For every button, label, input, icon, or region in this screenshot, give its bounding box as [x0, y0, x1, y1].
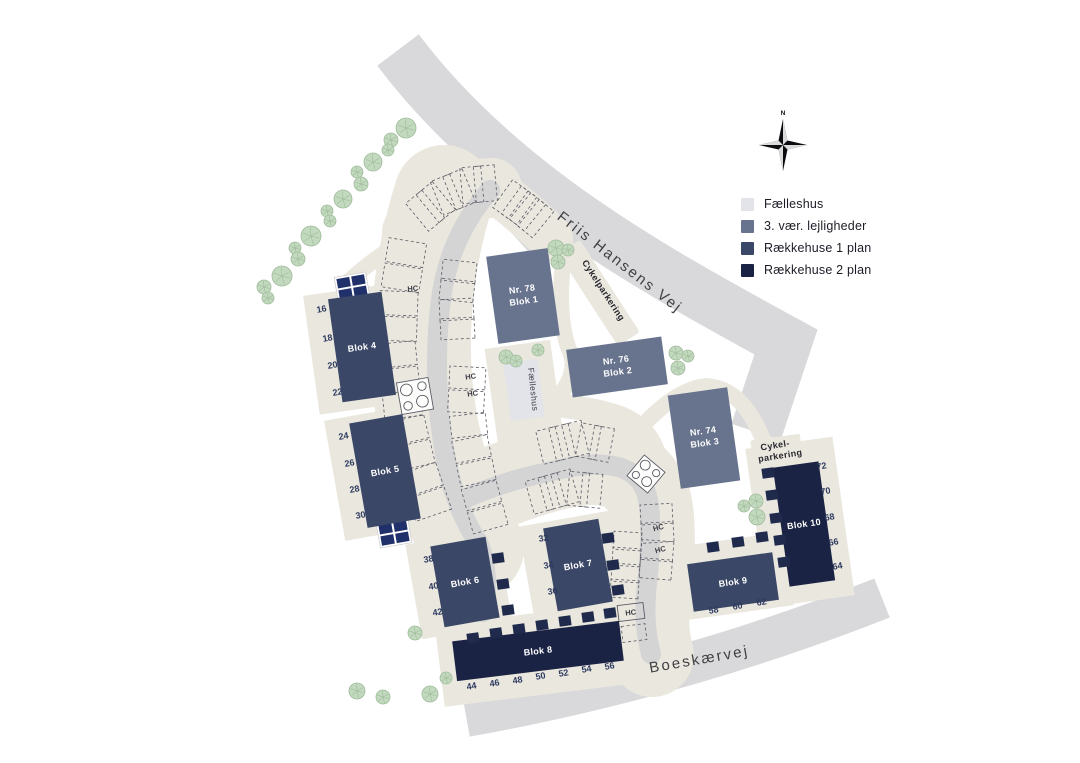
tree-icon — [334, 190, 352, 208]
house-number: 34 — [543, 559, 555, 571]
house-number: 30 — [355, 509, 367, 521]
tree-icon — [301, 226, 321, 246]
house-number: 62 — [756, 596, 768, 608]
shed — [755, 531, 768, 543]
legend-item-rowhouse-1: Rækkehuse 1 plan — [741, 241, 871, 255]
legend-swatch — [741, 220, 754, 233]
site-plan-map: Nr. 78Blok 1Nr. 76Blok 2Nr. 74Blok 3Blok… — [0, 0, 1080, 763]
house-number: 52 — [558, 667, 570, 679]
house-number: 36 — [547, 585, 559, 597]
shed — [466, 632, 479, 644]
hc-parking-label: HC — [407, 284, 419, 294]
house-number: 40 — [428, 580, 440, 592]
tree-icon — [272, 266, 292, 286]
building-blok-1: Nr. 78Blok 1 — [486, 248, 560, 344]
tree-icon — [738, 500, 750, 512]
legend-label: 3. vær. lejligheder — [764, 219, 866, 233]
house-number: 24 — [338, 430, 350, 442]
tree-icon — [351, 166, 363, 178]
tree-icon — [551, 255, 565, 269]
house-number: 56 — [604, 660, 616, 672]
house-number: 46 — [489, 677, 501, 689]
tree-icon — [349, 683, 365, 699]
tree-icon — [291, 252, 305, 266]
house-number: 42 — [432, 606, 444, 618]
legend: Fælleshus3. vær. lejlighederRækkehuse 1 … — [741, 197, 871, 277]
tree-icon — [324, 215, 336, 227]
shed — [512, 623, 525, 635]
tree-icon — [354, 177, 368, 191]
compass-north-label: N — [781, 110, 786, 117]
shed — [489, 627, 502, 639]
tree-icon — [396, 118, 416, 138]
house-number: 48 — [512, 674, 524, 686]
tree-icon — [548, 240, 564, 256]
shed — [496, 578, 509, 590]
site-plan-page: Nr. 78Blok 1Nr. 76Blok 2Nr. 74Blok 3Blok… — [0, 0, 1080, 763]
house-number: 72 — [816, 460, 828, 472]
shed — [535, 619, 548, 631]
shed — [773, 534, 786, 546]
house-number: 32 — [538, 532, 550, 544]
hc-parking-label: HC — [465, 371, 478, 382]
shed — [603, 607, 616, 619]
legend-label: Rækkehuse 1 plan — [764, 241, 871, 255]
legend-swatch — [741, 242, 754, 255]
legend-swatch — [741, 198, 754, 211]
tree-icon — [532, 344, 544, 356]
shed — [765, 489, 778, 501]
tree-icon — [364, 153, 382, 171]
house-number: 58 — [708, 604, 720, 616]
house-number: 60 — [732, 600, 744, 612]
tree-icon — [422, 686, 438, 702]
tree-icon — [382, 144, 394, 156]
house-number: 64 — [832, 560, 844, 572]
shed — [501, 604, 514, 616]
shed — [558, 615, 571, 627]
house-number: 50 — [535, 670, 547, 682]
tree-icon — [749, 509, 765, 525]
house-number: 38 — [423, 553, 435, 565]
shed — [611, 584, 624, 596]
house-number: 44 — [466, 680, 478, 692]
shed — [769, 512, 782, 524]
house-number: 68 — [824, 511, 836, 523]
house-number: 20 — [327, 359, 339, 371]
shed — [601, 532, 614, 544]
tree-icon — [562, 244, 574, 256]
tree-icon — [262, 292, 274, 304]
shed — [491, 552, 504, 564]
legend-item-apartments: 3. vær. lejligheder — [741, 219, 871, 233]
house-number: 70 — [820, 485, 832, 497]
shed — [777, 556, 790, 568]
tree-icon — [510, 355, 522, 367]
tree-icon — [749, 494, 763, 508]
tree-icon — [408, 626, 422, 640]
waste-station-box — [396, 377, 433, 414]
hc-parking-label: HC — [467, 388, 480, 399]
house-number: 18 — [322, 332, 334, 344]
tree-icon — [440, 672, 452, 684]
house-number: 66 — [828, 536, 840, 548]
house-number: 22 — [332, 386, 344, 398]
tree-icon — [669, 346, 683, 360]
waste-station-icon — [396, 377, 433, 414]
legend-label: Rækkehuse 2 plan — [764, 263, 871, 277]
legend-item-rowhouse-2: Rækkehuse 2 plan — [741, 263, 871, 277]
legend-swatch — [741, 264, 754, 277]
legend-item-community: Fælleshus — [741, 197, 871, 211]
shed — [706, 541, 719, 553]
house-number: 16 — [316, 303, 328, 315]
hc-parking-label: HC — [625, 607, 637, 617]
house-number: 54 — [581, 663, 593, 675]
shed — [606, 559, 619, 571]
tree-icon — [671, 361, 685, 375]
house-number: 26 — [344, 457, 356, 469]
tree-icon — [376, 690, 390, 704]
house-number: 28 — [349, 483, 361, 495]
shed — [731, 536, 744, 548]
shed — [761, 467, 774, 479]
legend-label: Fælleshus — [764, 197, 823, 211]
tree-icon — [682, 350, 694, 362]
shed — [581, 611, 594, 623]
